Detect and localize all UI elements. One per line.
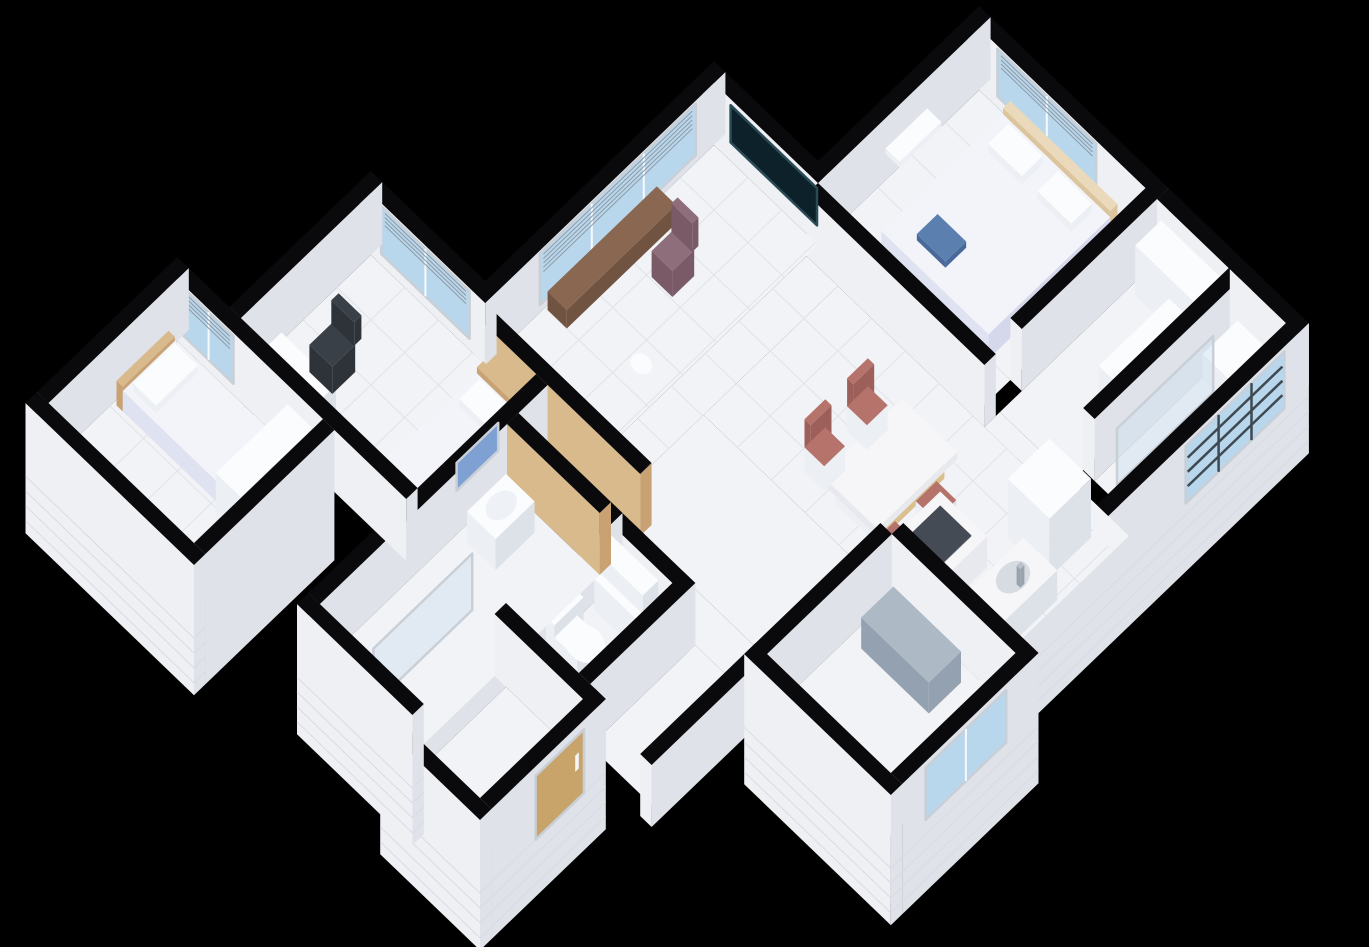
kitchen-faucet bbox=[1017, 562, 1025, 588]
apartment-3d-floorplan-render bbox=[0, 0, 1369, 947]
floorplan-scene bbox=[0, 0, 1369, 947]
